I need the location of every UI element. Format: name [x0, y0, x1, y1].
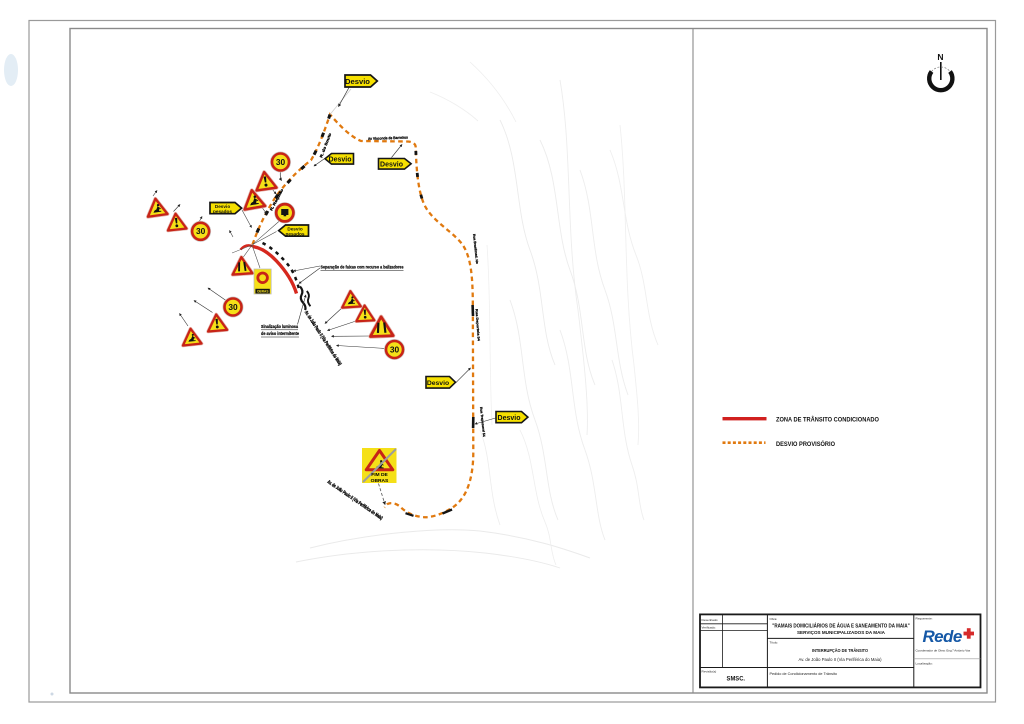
- svg-text:SERVIÇOS MUNICIPALIZADOS DA MA: SERVIÇOS MUNICIPALIZADOS DA MAIA: [797, 630, 886, 635]
- svg-text:Rede: Rede: [923, 627, 962, 646]
- svg-text:OBRAS: OBRAS: [371, 478, 389, 484]
- svg-text:Verificado:: Verificado:: [702, 626, 717, 630]
- svg-text:ZONA DE TRÂNSITO CONDICIONADO: ZONA DE TRÂNSITO CONDICIONADO: [776, 415, 879, 424]
- svg-text:Coordenador de Obra: Eng.º Ant: Coordenador de Obra: Eng.º António Vaz: [916, 649, 971, 653]
- svg-text:OBRAS: OBRAS: [257, 290, 269, 294]
- svg-text:Desvio: Desvio: [427, 380, 449, 387]
- svg-text:Localização:: Localização:: [916, 662, 933, 666]
- svg-text:Av. de João Paulo II (Via Peri: Av. de João Paulo II (Via Periférica do …: [799, 657, 882, 662]
- svg-text:Revisão(s): Revisão(s): [702, 670, 717, 674]
- svg-text:Separação de faixas com recurs: Separação de faixas com recurso a baliza…: [321, 265, 404, 271]
- svg-text:Desvio: Desvio: [329, 157, 352, 164]
- svg-text:N: N: [937, 52, 943, 62]
- svg-text:DESVIO PROVISÓRIO: DESVIO PROVISÓRIO: [776, 439, 835, 448]
- svg-text:Desvio: Desvio: [345, 77, 370, 86]
- svg-text:Sinalização luminosa: Sinalização luminosa: [261, 324, 298, 330]
- svg-text:INTERRUPÇÃO DE TRÂNSITO: INTERRUPÇÃO DE TRÂNSITO: [812, 647, 868, 654]
- svg-text:Pedido de Condicionamento de T: Pedido de Condicionamento de Trânsito: [770, 672, 838, 676]
- svg-text:FIM DE: FIM DE: [371, 472, 388, 478]
- svg-text:Desvio: Desvio: [498, 415, 521, 422]
- svg-text:pesados: pesados: [285, 231, 304, 236]
- svg-text:Requerente:: Requerente:: [916, 617, 933, 621]
- svg-text:Desvio: Desvio: [380, 162, 403, 169]
- svg-text:Título:: Título:: [770, 641, 779, 645]
- svg-text:pesados: pesados: [213, 209, 232, 214]
- svg-text:Obra:: Obra:: [770, 617, 778, 621]
- svg-text:Desenhado:: Desenhado:: [702, 618, 719, 622]
- svg-text:SMSC.: SMSC.: [727, 676, 746, 683]
- svg-text:de aviso intermitente: de aviso intermitente: [261, 331, 299, 337]
- svg-text:"RAMAIS DOMICILIÁRIOS DE ÁGUA: "RAMAIS DOMICILIÁRIOS DE ÁGUA E SANEAMEN…: [772, 622, 910, 629]
